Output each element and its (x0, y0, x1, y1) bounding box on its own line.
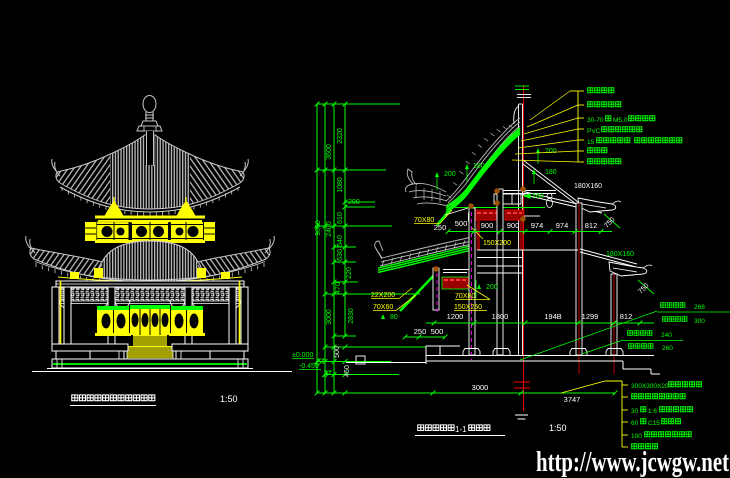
svg-text:200: 200 (486, 284, 498, 291)
svg-text:150X200: 150X200 (483, 240, 511, 247)
svg-text:974: 974 (531, 221, 544, 230)
svg-text:1080: 1080 (337, 177, 344, 193)
svg-text:250: 250 (434, 223, 447, 232)
svg-text:30-70: 30-70 (587, 117, 604, 124)
svg-text:180: 180 (473, 163, 485, 170)
svg-text:500: 500 (455, 219, 468, 228)
svg-text:1:50: 1:50 (549, 423, 567, 433)
svg-text:450: 450 (344, 365, 351, 377)
svg-text:194B: 194B (544, 312, 562, 321)
svg-text:220: 220 (346, 267, 353, 279)
svg-text:3000: 3000 (326, 309, 333, 325)
svg-text:70X80: 70X80 (414, 217, 434, 224)
svg-text:300: 300 (694, 318, 705, 325)
svg-text:M5.0: M5.0 (613, 117, 628, 124)
svg-text:±0.000: ±0.000 (292, 352, 313, 359)
svg-text:15: 15 (587, 139, 595, 146)
svg-text:610: 610 (337, 212, 344, 224)
svg-text:240: 240 (661, 332, 672, 339)
svg-text:80: 80 (390, 314, 398, 321)
svg-text:200: 200 (545, 148, 557, 155)
svg-text:1:50: 1:50 (220, 394, 238, 404)
svg-text:812: 812 (620, 312, 633, 321)
svg-text:9000: 9000 (315, 220, 322, 236)
svg-text:150X250: 150X250 (454, 304, 482, 311)
svg-text:22X200: 22X200 (371, 292, 395, 299)
svg-text:1299: 1299 (582, 312, 599, 321)
svg-text:200: 200 (348, 199, 360, 206)
svg-text:100: 100 (631, 433, 642, 440)
svg-text:200: 200 (444, 171, 456, 178)
svg-text:3000: 3000 (472, 383, 489, 392)
svg-text:70X80: 70X80 (455, 293, 475, 300)
svg-text:30: 30 (631, 408, 639, 415)
svg-text:900: 900 (507, 221, 520, 230)
svg-text:180X160: 180X160 (574, 183, 602, 190)
svg-text:70X60: 70X60 (373, 304, 393, 311)
svg-text:812: 812 (585, 221, 598, 230)
svg-text:500: 500 (334, 346, 341, 358)
svg-text:260: 260 (532, 193, 544, 200)
svg-text:http://www.jcwgw.net: http://www.jcwgw.net (536, 447, 730, 478)
svg-text:250: 250 (414, 327, 427, 336)
svg-text:268: 268 (694, 304, 705, 311)
svg-text:3600: 3600 (326, 144, 333, 160)
svg-text:1800: 1800 (492, 312, 509, 321)
svg-text:260: 260 (662, 345, 673, 352)
svg-text:1:6: 1:6 (648, 408, 657, 415)
svg-text:470: 470 (335, 282, 342, 294)
svg-text:974: 974 (556, 221, 569, 230)
svg-text:540: 540 (337, 235, 344, 247)
svg-text:630: 630 (337, 249, 344, 261)
svg-text:300X300X20: 300X300X20 (631, 383, 669, 390)
svg-text:500: 500 (431, 327, 444, 336)
svg-text:2830: 2830 (348, 308, 355, 324)
svg-text:2320: 2320 (337, 128, 344, 144)
svg-text:-0.450: -0.450 (299, 363, 319, 370)
svg-text:PVC: PVC (587, 128, 601, 135)
svg-text:3747: 3747 (564, 395, 581, 404)
svg-text:C15: C15 (648, 420, 660, 427)
svg-text:900: 900 (481, 221, 494, 230)
svg-text:1200: 1200 (447, 312, 464, 321)
svg-text:2400: 2400 (326, 221, 333, 237)
svg-text:1-1: 1-1 (455, 425, 467, 434)
svg-text:60: 60 (631, 420, 639, 427)
svg-text:180X160: 180X160 (606, 251, 634, 258)
svg-text:180: 180 (545, 169, 557, 176)
